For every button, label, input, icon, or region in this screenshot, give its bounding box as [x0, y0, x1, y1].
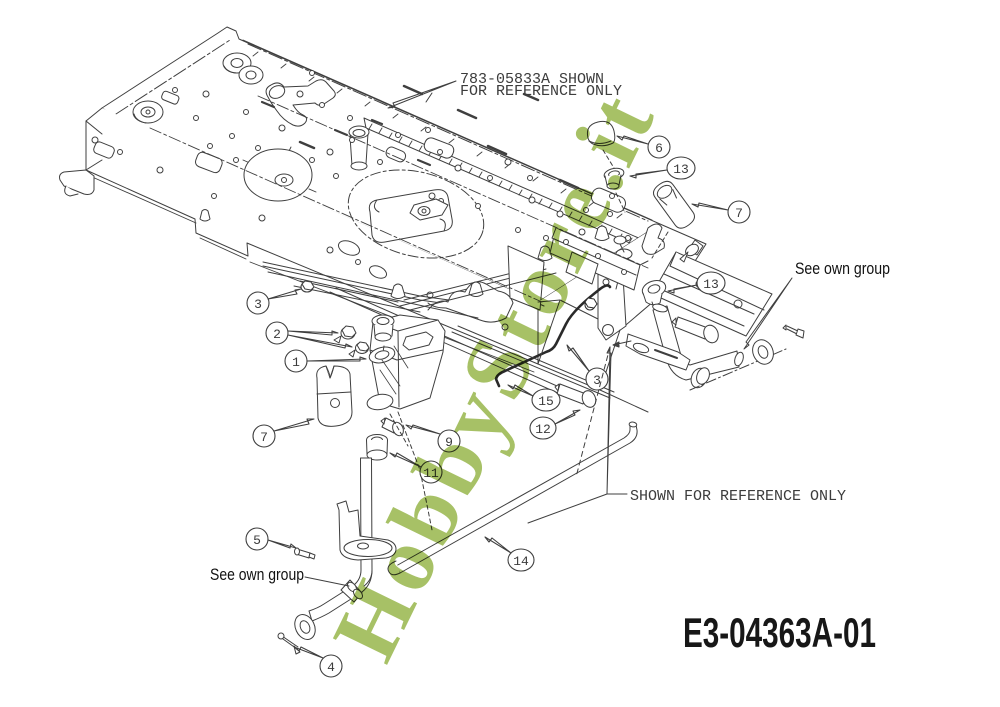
svg-text:See own group: See own group	[795, 259, 890, 278]
svg-text:14: 14	[513, 554, 529, 569]
svg-text:12: 12	[535, 422, 551, 437]
svg-text:1: 1	[292, 355, 300, 370]
svg-text:E3-04363A-01: E3-04363A-01	[683, 609, 876, 656]
svg-text:13: 13	[703, 277, 719, 292]
svg-text:5: 5	[253, 533, 261, 548]
svg-text:7: 7	[260, 430, 268, 445]
svg-text:7: 7	[735, 206, 743, 221]
svg-text:See own group: See own group	[210, 565, 304, 584]
svg-text:SHOWN FOR REFERENCE ONLY: SHOWN FOR REFERENCE ONLY	[630, 488, 846, 505]
svg-text:13: 13	[673, 162, 689, 177]
svg-text:4: 4	[327, 660, 335, 675]
svg-text:3: 3	[254, 297, 262, 312]
svg-text:2: 2	[273, 327, 281, 342]
svg-text:15: 15	[538, 394, 554, 409]
